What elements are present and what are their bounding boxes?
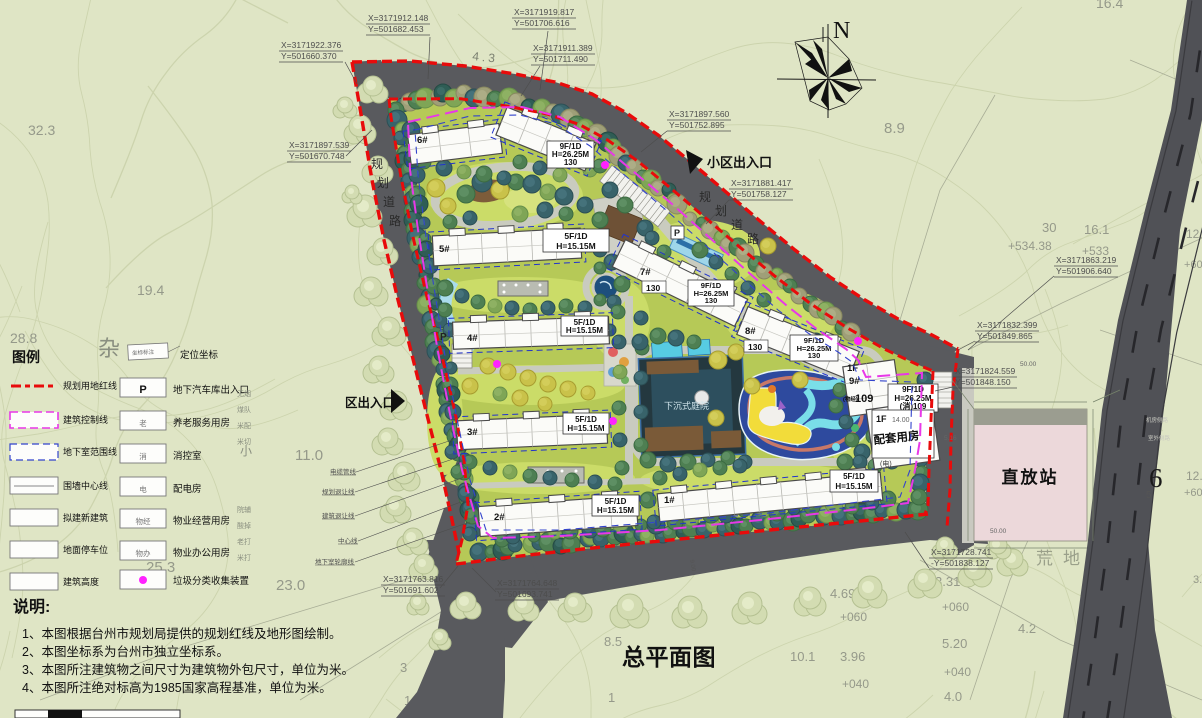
svg-text:4.3: 4.3: [472, 49, 499, 66]
svg-text:X=3171881.417: X=3171881.417: [731, 178, 792, 188]
svg-text:N: N: [833, 18, 850, 44]
svg-text:5F/1D: 5F/1D: [605, 497, 627, 506]
svg-text:16.1: 16.1: [1084, 222, 1109, 237]
svg-text:4、本图所注绝对标高为1985国家高程基准，单位为米。: 4、本图所注绝对标高为1985国家高程基准，单位为米。: [22, 680, 332, 695]
svg-text:H=15.15M: H=15.15M: [835, 482, 872, 491]
svg-text:130: 130: [705, 296, 718, 305]
svg-text:拟建新建筑: 拟建新建筑: [63, 512, 108, 523]
svg-text:建筑退让线: 建筑退让线: [322, 511, 355, 520]
svg-text:定位坐标: 定位坐标: [180, 349, 219, 361]
svg-text:+534.38: +534.38: [1008, 239, 1052, 253]
svg-text:5F/1D: 5F/1D: [575, 415, 597, 424]
svg-text:围墙中心线: 围墙中心线: [63, 480, 108, 491]
svg-text:下沉式庭院: 下沉式庭院: [664, 400, 709, 411]
svg-text:Y=501693.741: Y=501693.741: [497, 589, 553, 599]
svg-text:7#: 7#: [640, 267, 651, 278]
svg-text:+040: +040: [944, 665, 971, 679]
svg-text:+040: +040: [842, 677, 869, 691]
svg-text:3.96: 3.96: [840, 649, 865, 664]
svg-text:X=3171911.389: X=3171911.389: [533, 43, 593, 53]
svg-text:酸掉: 酸掉: [237, 521, 251, 530]
svg-text:中心线: 中心线: [338, 536, 358, 545]
svg-text:Y=501670.748: Y=501670.748: [289, 151, 345, 161]
svg-text:3#: 3#: [467, 427, 478, 438]
svg-text:3、本图所注建筑物之间尺寸为建筑物外包尺寸，单位为米。: 3、本图所注建筑物之间尺寸为建筑物外包尺寸，单位为米。: [22, 662, 354, 677]
svg-text:130: 130: [748, 342, 762, 352]
svg-text:地面停车位: 地面停车位: [63, 544, 108, 555]
svg-text:Y=501849.865: Y=501849.865: [977, 331, 1033, 341]
svg-text:小区出入口: 小区出入口: [707, 155, 772, 170]
svg-text:物经: 物经: [136, 516, 151, 526]
svg-text:5.16: 5.16: [944, 435, 957, 442]
svg-text:5F/1D: 5F/1D: [564, 231, 587, 241]
svg-text:4.69: 4.69: [830, 586, 855, 601]
svg-text:养老服务用房: 养老服务用房: [173, 417, 230, 429]
svg-text:5: 5: [1146, 490, 1152, 501]
svg-text:X=3171922.376: X=3171922.376: [281, 40, 342, 50]
svg-text:P: P: [674, 228, 680, 238]
svg-text:物业办公用房: 物业办公用房: [173, 547, 230, 559]
svg-text:无烟: 无烟: [237, 389, 251, 398]
svg-text:地下室范围线: 地下室范围线: [63, 446, 117, 457]
svg-text:+060: +060: [840, 610, 867, 624]
svg-text:2、本图坐标系为台州市独立坐标系。: 2、本图坐标系为台州市独立坐标系。: [22, 644, 229, 659]
svg-text:室外侧路: 室外侧路: [1148, 434, 1171, 442]
svg-text:道: 道: [383, 195, 395, 209]
svg-text:Y=501691.602: Y=501691.602: [383, 585, 439, 595]
svg-text:路: 路: [747, 231, 759, 246]
svg-text:1F: 1F: [847, 363, 858, 374]
svg-text:配电房: 配电房: [173, 483, 202, 495]
svg-text:130: 130: [646, 283, 660, 293]
svg-text:消控室: 消控室: [173, 450, 202, 462]
svg-text:米切: 米切: [237, 437, 251, 446]
svg-text:P: P: [139, 384, 146, 396]
svg-text:X=3171832.399: X=3171832.399: [977, 320, 1038, 330]
svg-text:3: 3: [400, 660, 407, 675]
svg-text:4.0: 4.0: [944, 689, 962, 704]
svg-text:Y=501848.150: Y=501848.150: [955, 377, 1011, 387]
svg-text:X=3171863.219: X=3171863.219: [1056, 255, 1117, 265]
svg-text:煤队: 煤队: [237, 405, 251, 414]
svg-text:划: 划: [715, 204, 727, 218]
svg-text:路: 路: [389, 213, 401, 228]
svg-text:50.00: 50.00: [1020, 361, 1037, 368]
svg-text:电: 电: [139, 484, 147, 494]
svg-text:(消)109: (消)109: [900, 401, 927, 411]
svg-text:H=15.15M: H=15.15M: [556, 241, 595, 251]
svg-text:X=3171728.741: X=3171728.741: [931, 547, 992, 557]
svg-text:3.3: 3.3: [1193, 574, 1202, 586]
svg-text:8.5: 8.5: [604, 634, 622, 649]
svg-text:Y=501682.453: Y=501682.453: [368, 24, 424, 34]
svg-text:规划退让线: 规划退让线: [322, 487, 355, 496]
svg-text:Y=501906.640: Y=501906.640: [1056, 266, 1112, 276]
svg-text:说明:: 说明:: [13, 597, 50, 616]
svg-text:Y=501711.490: Y=501711.490: [533, 54, 588, 64]
svg-text:老: 老: [139, 418, 147, 428]
svg-text:地下室轮廓线: 地下室轮廓线: [315, 557, 355, 566]
svg-text:Y=501758.127: Y=501758.127: [731, 189, 787, 199]
svg-text:图例: 图例: [12, 349, 40, 365]
svg-text:50.00: 50.00: [990, 528, 1007, 535]
svg-text:物办: 物办: [136, 548, 151, 558]
svg-text:规划用地红线: 规划用地红线: [63, 380, 117, 391]
svg-text:109: 109: [855, 393, 873, 405]
svg-text:垃圾分类收集装置: 垃圾分类收集装置: [173, 575, 249, 587]
svg-text:Y=501752.895: Y=501752.895: [669, 120, 725, 130]
svg-text:1: 1: [608, 690, 615, 705]
svg-text:机房侧路: 机房侧路: [1146, 416, 1169, 424]
svg-text:19.4: 19.4: [137, 282, 164, 298]
svg-text:H=15.15M: H=15.15M: [566, 326, 603, 335]
svg-text:6: 6: [1149, 463, 1163, 493]
svg-text:H=15.15M: H=15.15M: [597, 506, 634, 515]
svg-text:(物经): (物经): [843, 395, 858, 403]
svg-text:6#: 6#: [417, 135, 428, 146]
svg-text:杂: 杂: [98, 336, 120, 361]
svg-text:12.: 12.: [1186, 469, 1202, 483]
svg-text:+060: +060: [942, 600, 969, 614]
svg-text:5.20: 5.20: [942, 636, 967, 651]
svg-text:H=15.15M: H=15.15M: [567, 424, 604, 433]
svg-text:Y=501660.370: Y=501660.370: [281, 51, 337, 61]
svg-text:X=3171897.560: X=3171897.560: [669, 109, 730, 119]
svg-text:23.0: 23.0: [276, 577, 305, 594]
svg-text:30: 30: [1042, 220, 1056, 235]
svg-text:小: 小: [240, 444, 252, 458]
svg-text:2#: 2#: [494, 512, 505, 523]
svg-text:X=3171919.817: X=3171919.817: [514, 7, 575, 17]
svg-text:X=3171824.559: X=3171824.559: [955, 366, 1016, 376]
svg-text:电缆管线: 电缆管线: [330, 467, 357, 476]
svg-text:130: 130: [808, 351, 821, 360]
svg-text:Y=501706.616: Y=501706.616: [514, 18, 570, 28]
svg-text:物业经营用房: 物业经营用房: [173, 515, 230, 527]
svg-text:10.1: 10.1: [790, 649, 815, 664]
svg-text:4.2: 4.2: [1018, 621, 1036, 636]
svg-text:道: 道: [731, 218, 743, 232]
svg-text:1、本图根据台州市规划局提供的规划红线及地形图绘制。: 1、本图根据台州市规划局提供的规划红线及地形图绘制。: [22, 626, 341, 641]
svg-text:+603: +603: [1184, 487, 1202, 499]
svg-text:(电): (电): [880, 459, 892, 468]
svg-text:8#: 8#: [745, 326, 756, 337]
svg-text:4#: 4#: [467, 333, 478, 344]
svg-text:14.00: 14.00: [892, 417, 910, 424]
svg-text:规: 规: [371, 156, 383, 171]
svg-text:32.3: 32.3: [28, 122, 55, 138]
svg-text:米打: 米打: [237, 553, 251, 562]
svg-text:130: 130: [564, 158, 578, 167]
svg-text:5#: 5#: [439, 244, 450, 255]
svg-text:院辅: 院辅: [237, 505, 251, 514]
svg-text:11.0: 11.0: [295, 447, 323, 464]
svg-text:划: 划: [377, 176, 389, 190]
svg-text:16.4: 16.4: [1096, 0, 1123, 11]
svg-text:区出入口: 区出入口: [345, 395, 395, 410]
svg-text:1F: 1F: [876, 414, 887, 424]
svg-text:X=3171912.148: X=3171912.148: [368, 13, 429, 23]
svg-text:8.9: 8.9: [884, 120, 905, 137]
svg-text:米配: 米配: [237, 421, 251, 430]
svg-text:1#: 1#: [664, 495, 675, 506]
svg-text:老打: 老打: [237, 537, 251, 546]
svg-text:总平面图: 总平面图: [622, 644, 716, 670]
svg-text:荒地: 荒地: [1036, 549, 1090, 568]
svg-text:28.8: 28.8: [10, 330, 37, 346]
svg-text:5F/1D: 5F/1D: [843, 472, 865, 481]
svg-text:建筑控制线: 建筑控制线: [63, 414, 108, 425]
svg-text:X=3171763.816: X=3171763.816: [383, 574, 444, 584]
svg-text:建筑高度: 建筑高度: [63, 576, 99, 587]
svg-text:直放站: 直放站: [1002, 467, 1059, 487]
svg-text:P: P: [440, 332, 447, 343]
svg-text:-Y=501838.127: -Y=501838.127: [931, 558, 990, 568]
svg-text:规: 规: [699, 189, 711, 204]
svg-text:消: 消: [139, 451, 147, 461]
svg-text:X=3171897.539: X=3171897.539: [289, 140, 350, 150]
svg-text:X=3171764.648: X=3171764.648: [497, 578, 558, 588]
